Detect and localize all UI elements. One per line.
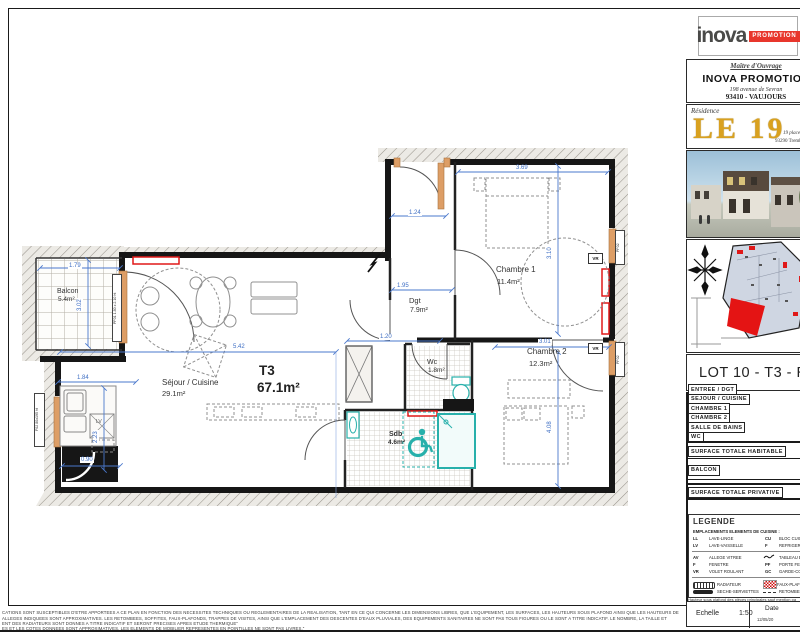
- vr-shutter-box: VR: [588, 253, 603, 264]
- joinery-plate-f02: F02 80x195 ht: [34, 393, 45, 447]
- legend-abbrev-key: PF: [765, 562, 770, 567]
- legend-abbrev-key: F: [693, 562, 696, 567]
- vr-shutter-box: VR: [588, 343, 603, 354]
- scale-label: Echelle: [696, 610, 719, 617]
- photo-building-window: [775, 195, 781, 205]
- legend-abbrev-key: AV: [693, 555, 699, 560]
- retombee-icon: [763, 592, 776, 593]
- legend-subtitle: EMPLACEMENTS ELEMENTS DE CUISINE :: [693, 529, 780, 534]
- room-sejour-area: 29.1m²: [162, 390, 185, 398]
- siteplan-box: [686, 239, 800, 353]
- room-sdb-area: 4.6m²: [388, 440, 405, 447]
- photo-building-window: [695, 191, 700, 199]
- owner-address2: 93410 - VAUJOURS: [687, 93, 800, 101]
- dim-label: 1.79: [68, 263, 82, 269]
- scale-date-divider: [749, 602, 750, 628]
- room-dgt-area: 7.9m²: [410, 307, 428, 314]
- technical-shaft: [346, 346, 372, 402]
- photo-building-window: [787, 195, 793, 205]
- legend-divider: [692, 577, 800, 578]
- type-area: 67.1m²: [257, 381, 300, 395]
- lot-title: LOT 10 - T3 - R: [687, 365, 800, 381]
- legend-abbrev-key: LL: [693, 536, 698, 541]
- date-value: 12/05/20: [757, 617, 773, 622]
- kitchen-lv-label: LV: [96, 420, 102, 425]
- radiator-icon: [693, 582, 715, 589]
- photo-building-window: [729, 199, 736, 213]
- type-label: T3: [259, 364, 275, 378]
- legend-abbrev-value: ALLEGE VITREE: [709, 555, 742, 560]
- legend-abbrev-key: VR: [693, 569, 699, 574]
- faux-plafond-icon: [763, 580, 777, 589]
- residence-photo: [686, 150, 800, 238]
- plan-sheet: { "plan": { "type": {"name": "T3", "area…: [0, 0, 800, 640]
- legend-abbrev-value: VOLET ROULANT: [709, 569, 744, 574]
- room-chambre1-area: 11.4m²: [497, 278, 520, 286]
- photo-building-window: [727, 177, 733, 185]
- kitchen-counter: [60, 386, 116, 452]
- legend-abbrev-key: LV: [693, 543, 698, 548]
- joinery-plate-pf01: PF01 1.80 x 2.10 ht: [112, 274, 122, 342]
- dim-label: 3.10: [547, 246, 553, 260]
- residence-box: Résidence LE 19 19 place 93290 Tremblay: [686, 104, 800, 149]
- logo-badge: PROMOTION: [749, 31, 799, 42]
- legend-icon-label: RADIATEUR: [717, 582, 741, 587]
- room-sejour-name: Séjour / Cuisine: [162, 379, 218, 387]
- owner-name: INOVA PROMOTION: [687, 73, 800, 85]
- photo-building-window: [704, 191, 709, 199]
- room-sdb-name: Sdb: [389, 431, 402, 438]
- joinery-plate-pf02: PF02: [615, 342, 625, 377]
- dim-label: 0.90: [80, 457, 94, 463]
- residence-addr1: 19 place: [783, 131, 800, 136]
- legend-abbrev-key: CU: [765, 536, 771, 541]
- siteplan-svg: [687, 240, 800, 354]
- scale-date-box: Echelle 1:50 Date 12/05/20: [686, 601, 800, 627]
- legend-abbrev-value: LAVE-LINGE: [709, 536, 733, 541]
- table-separator: [686, 441, 800, 443]
- dim-label: 2.23: [93, 430, 99, 444]
- legend-icon-label: FAUX-PLAFOND: [777, 582, 800, 587]
- residence-name: LE 19: [693, 112, 786, 146]
- room-chambre1-name: Chambre 1: [496, 266, 536, 274]
- legend-abbrev-value: LAVE-VAISSELLE: [709, 543, 743, 548]
- legend-icon-label: SECHE-SERVIETTES: [717, 589, 759, 594]
- owner-box: Maître d'Ouvrage INOVA PROMOTION 198 ave…: [686, 59, 800, 103]
- legend-abbrev-value: TABLEAU ELECTRIQUE: [779, 555, 800, 560]
- seche-serviettes-icon: [693, 590, 713, 594]
- photo-person: [707, 215, 710, 224]
- dim-label: 1.20: [379, 334, 393, 340]
- siteplan-thumbnail: [691, 242, 800, 348]
- scale-value: 1:50: [739, 610, 753, 617]
- table-row-total-privative: SURFACE TOTALE PRIVATIVE: [688, 487, 783, 498]
- legend-title: LEGENDE: [693, 517, 735, 526]
- compass-icon: [689, 246, 721, 294]
- legend-box: LEGENDE EMPLACEMENTS ELEMENTS DE CUISINE…: [688, 514, 800, 598]
- logo-brand: inova: [696, 24, 746, 48]
- room-dgt-name: Dgt: [409, 297, 421, 305]
- room-balcon-name: Balcon: [57, 288, 78, 295]
- legend-abbrev-key: GC: [765, 569, 771, 574]
- joinery-plate-pf02: PF02: [615, 230, 625, 265]
- dim-label: 1.24: [408, 210, 422, 216]
- legend-abbrev-value: BLOC CUISINE: [779, 536, 800, 541]
- table-separator: [686, 483, 800, 485]
- dim-label: 3.02: [77, 298, 83, 312]
- legend-abbrev-value: GARDE-CORPS: [779, 569, 800, 574]
- table-separator: [686, 498, 800, 500]
- disclaimer-line: ALLEGES INDIQUEES SONT APPROXIMATIVES. L…: [2, 616, 667, 621]
- logo-box: inova PROMOTION: [698, 16, 798, 56]
- table-row-total-habitable: SURFACE TOTALE HABITABLE: [688, 446, 786, 457]
- legend-icon-label: RETOMBEE: [779, 589, 800, 594]
- dim-label: 1.84: [76, 375, 90, 381]
- room-balcon-area: 5.4m²: [58, 297, 75, 304]
- legend-abbrev-key: F: [765, 543, 768, 548]
- room-wc-name: Wc: [427, 359, 437, 366]
- dim-label: 4.08: [547, 420, 553, 434]
- table-separator: [686, 458, 800, 459]
- wave-icon: [763, 554, 775, 560]
- dim-label: 3.69: [515, 165, 529, 171]
- residence-addr2: 93290 Tremblay: [775, 139, 800, 144]
- legend-abbrev-value: FENETRE: [709, 562, 729, 567]
- legend-abbrev-value: PORTE FENETRE: [779, 562, 800, 567]
- room-chambre2-area: 12.3m²: [529, 360, 552, 368]
- owner-heading: Maître d'Ouvrage: [687, 62, 800, 70]
- legend-abbrev-value: REFRIGERATEUR: [779, 543, 800, 548]
- dim-label: 1.95: [396, 283, 410, 289]
- dim-label: 3.01: [538, 339, 552, 345]
- legend-divider: [692, 551, 800, 552]
- photo-building-window: [739, 177, 745, 185]
- photo-building-window: [743, 199, 750, 213]
- room-chambre2-name: Chambre 2: [527, 348, 567, 356]
- room-wc-area: 1.8m²: [428, 368, 445, 375]
- photo-building-window: [751, 177, 757, 185]
- disclaimer-line: ES ET LES COTES DONNEES SONT APPROXIMATI…: [2, 626, 304, 631]
- date-label: Date: [765, 605, 779, 612]
- dim-label: 5.42: [232, 344, 246, 350]
- table-row-balcon: BALCON: [688, 465, 720, 476]
- disclaimer-line: CATIONS SONT SUSCEPTIBLES D'ETRE APPORTE…: [2, 610, 679, 615]
- table-separator: [686, 479, 800, 480]
- photo-person: [699, 215, 702, 224]
